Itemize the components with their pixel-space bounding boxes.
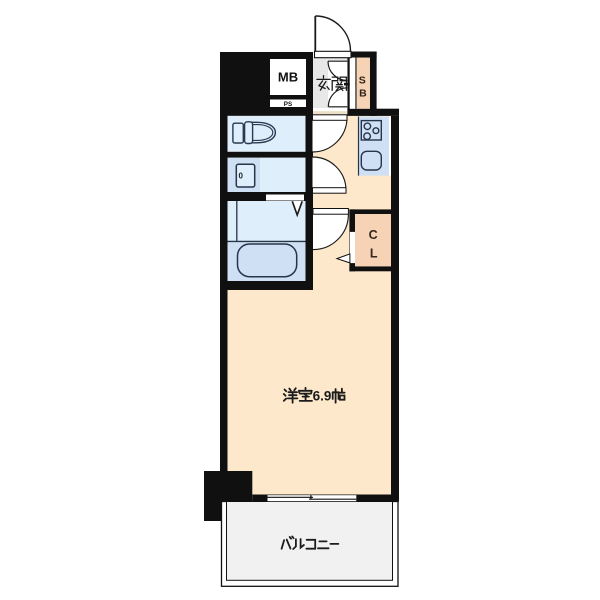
svg-text:PS: PS	[284, 101, 292, 108]
svg-text:B: B	[359, 87, 367, 99]
svg-text:C: C	[369, 228, 378, 242]
svg-text:S: S	[359, 75, 366, 87]
svg-text:0: 0	[238, 172, 243, 181]
svg-text:MB: MB	[278, 70, 298, 85]
svg-text:L: L	[370, 246, 378, 260]
svg-text:6.9: 6.9	[313, 389, 332, 404]
